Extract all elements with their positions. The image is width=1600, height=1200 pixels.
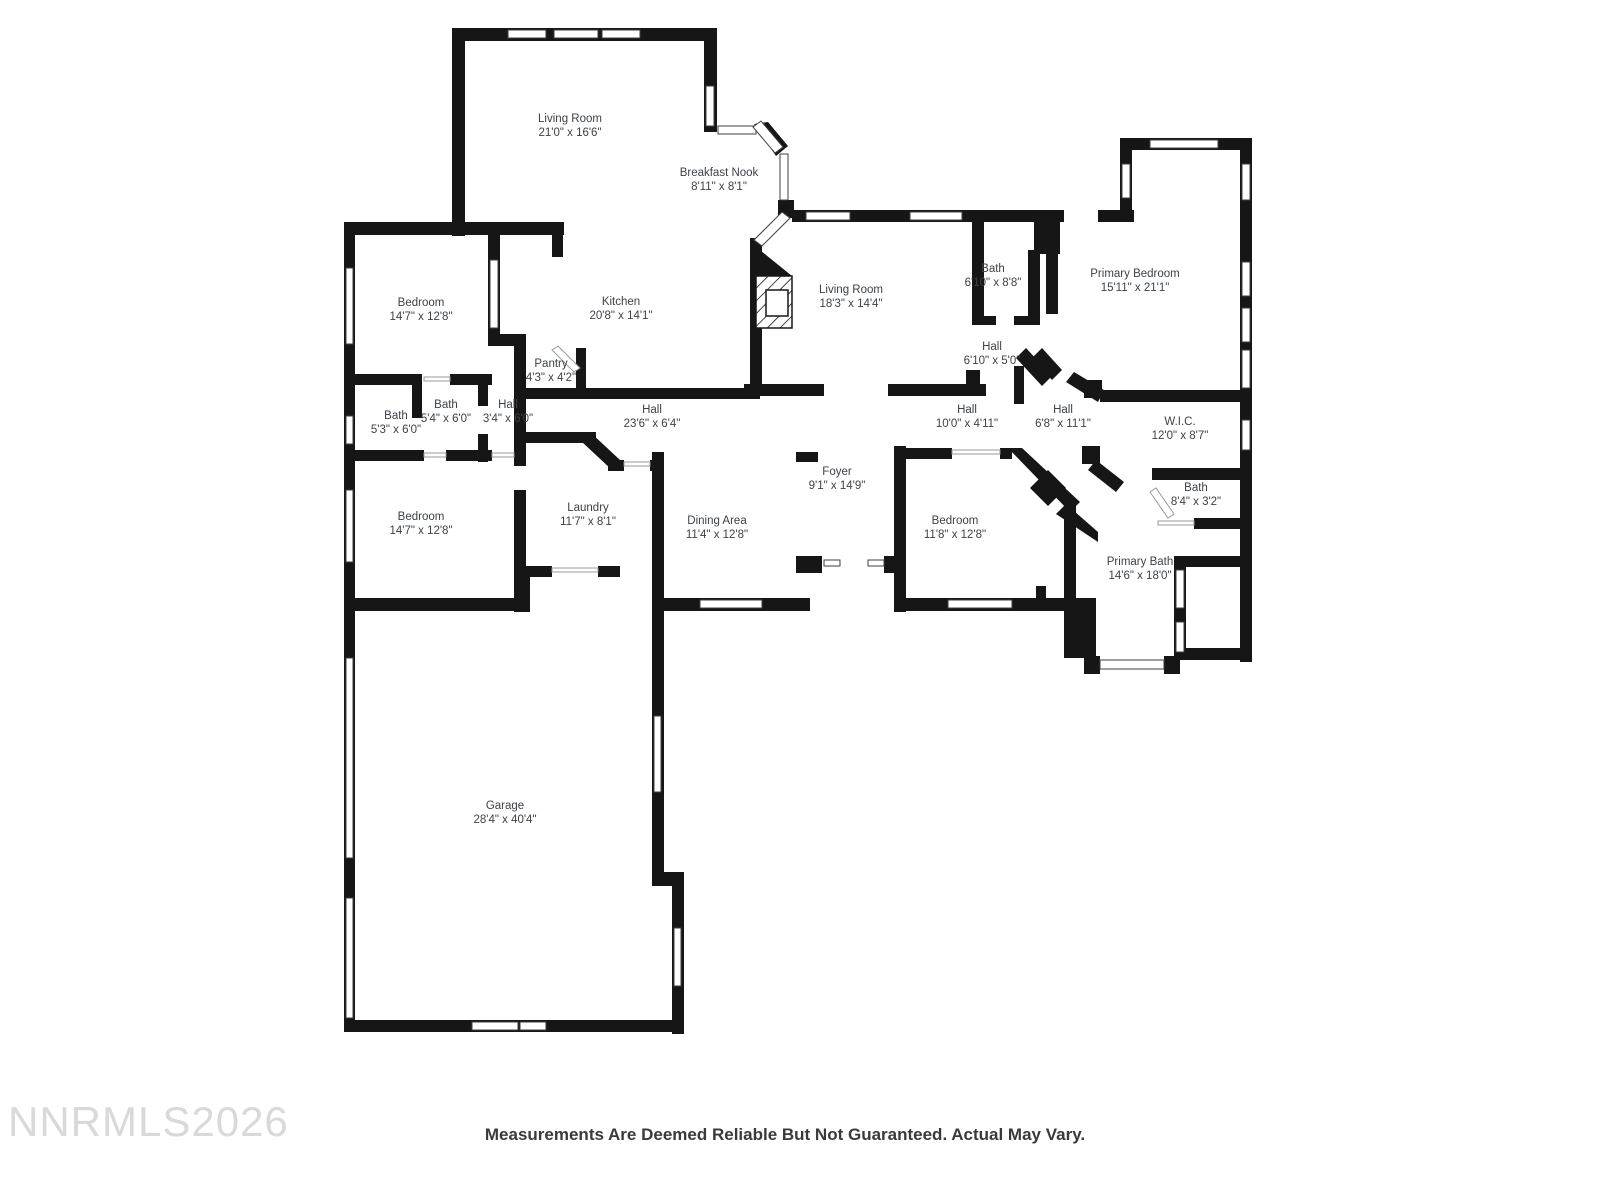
room-label-primary-bath: Primary Bath 14'6" x 18'0" xyxy=(1107,555,1173,583)
room-name: Laundry xyxy=(560,501,616,515)
room-name: Hall xyxy=(483,398,533,412)
room-label-bath-53: Bath 5'3" x 6'0" xyxy=(371,409,421,437)
room-name: Living Room xyxy=(819,283,883,297)
room-dims: 9'1" x 14'9" xyxy=(809,479,866,493)
room-label-bath-84: Bath 8'4" x 3'2" xyxy=(1171,481,1221,509)
floorplan: Living Room 21'0" x 16'6" Breakfast Nook… xyxy=(0,0,1600,1200)
room-dims: 28'4" x 40'4" xyxy=(473,813,536,827)
room-dims: 12'0" x 8'7" xyxy=(1152,429,1209,443)
room-name: Bath xyxy=(421,398,471,412)
room-label-bath-middle: Bath 6'10" x 8'8" xyxy=(965,262,1022,290)
room-name: Living Room xyxy=(538,112,602,126)
room-label-kitchen: Kitchen 20'8" x 14'1" xyxy=(589,295,652,323)
room-dims: 6'8" x 11'1" xyxy=(1035,417,1091,431)
room-name: W.I.C. xyxy=(1152,415,1209,429)
room-name: Bath xyxy=(371,409,421,423)
room-dims: 15'11" x 21'1" xyxy=(1090,281,1179,295)
room-label-bath-54: Bath 5'4" x 6'0" xyxy=(421,398,471,426)
room-label-garage: Garage 28'4" x 40'4" xyxy=(473,799,536,827)
room-dims: 18'3" x 14'4" xyxy=(819,297,883,311)
room-label-bedroom-top-left: Bedroom 14'7" x 12'8" xyxy=(389,296,452,324)
room-dims: 6'10" x 8'8" xyxy=(965,276,1022,290)
room-name: Pantry xyxy=(526,357,576,371)
room-name: Breakfast Nook xyxy=(680,166,759,180)
room-label-hall-34: Hall 3'4" x 6'0" xyxy=(483,398,533,426)
room-name: Primary Bath xyxy=(1107,555,1173,569)
room-name: Foyer xyxy=(809,465,866,479)
room-dims: 11'4" x 12'8" xyxy=(686,528,748,542)
room-name: Garage xyxy=(473,799,536,813)
room-label-living-room-top: Living Room 21'0" x 16'6" xyxy=(538,112,602,140)
fireplace xyxy=(756,276,792,328)
room-dims: 6'10" x 5'0" xyxy=(964,354,1021,368)
windows-group xyxy=(346,30,1250,1030)
room-name: Primary Bedroom xyxy=(1090,267,1179,281)
room-name: Hall xyxy=(1035,403,1091,417)
room-label-hall-610: Hall 6'10" x 5'0" xyxy=(964,340,1021,368)
room-label-hall-236: Hall 23'6" x 6'4" xyxy=(624,403,681,431)
floorplan-drawing xyxy=(0,0,1600,1200)
room-name: Hall xyxy=(936,403,998,417)
room-dims: 14'7" x 12'8" xyxy=(389,310,452,324)
room-label-bedroom-middle-right: Bedroom 11'8" x 12'8" xyxy=(924,514,986,542)
room-dims: 5'3" x 6'0" xyxy=(371,423,421,437)
room-dims: 11'7" x 8'1" xyxy=(560,515,616,529)
room-name: Hall xyxy=(964,340,1021,354)
walls-group xyxy=(344,28,1252,1034)
room-label-primary-bedroom: Primary Bedroom 15'11" x 21'1" xyxy=(1090,267,1179,295)
room-label-living-room-middle: Living Room 18'3" x 14'4" xyxy=(819,283,883,311)
room-name: Bedroom xyxy=(389,296,452,310)
room-dims: 20'8" x 14'1" xyxy=(589,309,652,323)
room-name: Kitchen xyxy=(589,295,652,309)
room-dims: 5'4" x 6'0" xyxy=(421,412,471,426)
room-dims: 8'4" x 3'2" xyxy=(1171,495,1221,509)
room-dims: 4'3" x 4'2" xyxy=(526,371,576,385)
room-dims: 23'6" x 6'4" xyxy=(624,417,681,431)
room-label-pantry: Pantry 4'3" x 4'2" xyxy=(526,357,576,385)
room-dims: 3'4" x 6'0" xyxy=(483,412,533,426)
room-label-wic: W.I.C. 12'0" x 8'7" xyxy=(1152,415,1209,443)
room-name: Bedroom xyxy=(924,514,986,528)
room-name: Bedroom xyxy=(389,510,452,524)
room-dims: 8'11" x 8'1" xyxy=(680,180,759,194)
room-dims: 14'7" x 12'8" xyxy=(389,524,452,538)
room-dims: 21'0" x 16'6" xyxy=(538,126,602,140)
room-label-bedroom-lower-left: Bedroom 14'7" x 12'8" xyxy=(389,510,452,538)
room-label-dining-area: Dining Area 11'4" x 12'8" xyxy=(686,514,748,542)
room-name: Bath xyxy=(1171,481,1221,495)
mls-watermark: NNRMLS2026 xyxy=(8,1098,289,1146)
room-name: Hall xyxy=(624,403,681,417)
room-label-hall-68: Hall 6'8" x 11'1" xyxy=(1035,403,1091,431)
room-dims: 11'8" x 12'8" xyxy=(924,528,986,542)
room-name: Bath xyxy=(965,262,1022,276)
disclaimer-text: Measurements Are Deemed Reliable But Not… xyxy=(485,1125,1085,1145)
room-label-breakfast-nook: Breakfast Nook 8'11" x 8'1" xyxy=(680,166,759,194)
room-dims: 10'0" x 4'11" xyxy=(936,417,998,431)
room-label-foyer: Foyer 9'1" x 14'9" xyxy=(809,465,866,493)
room-label-laundry: Laundry 11'7" x 8'1" xyxy=(560,501,616,529)
room-dims: 14'6" x 18'0" xyxy=(1107,569,1173,583)
room-name: Dining Area xyxy=(686,514,748,528)
room-label-hall-100: Hall 10'0" x 4'11" xyxy=(936,403,998,431)
